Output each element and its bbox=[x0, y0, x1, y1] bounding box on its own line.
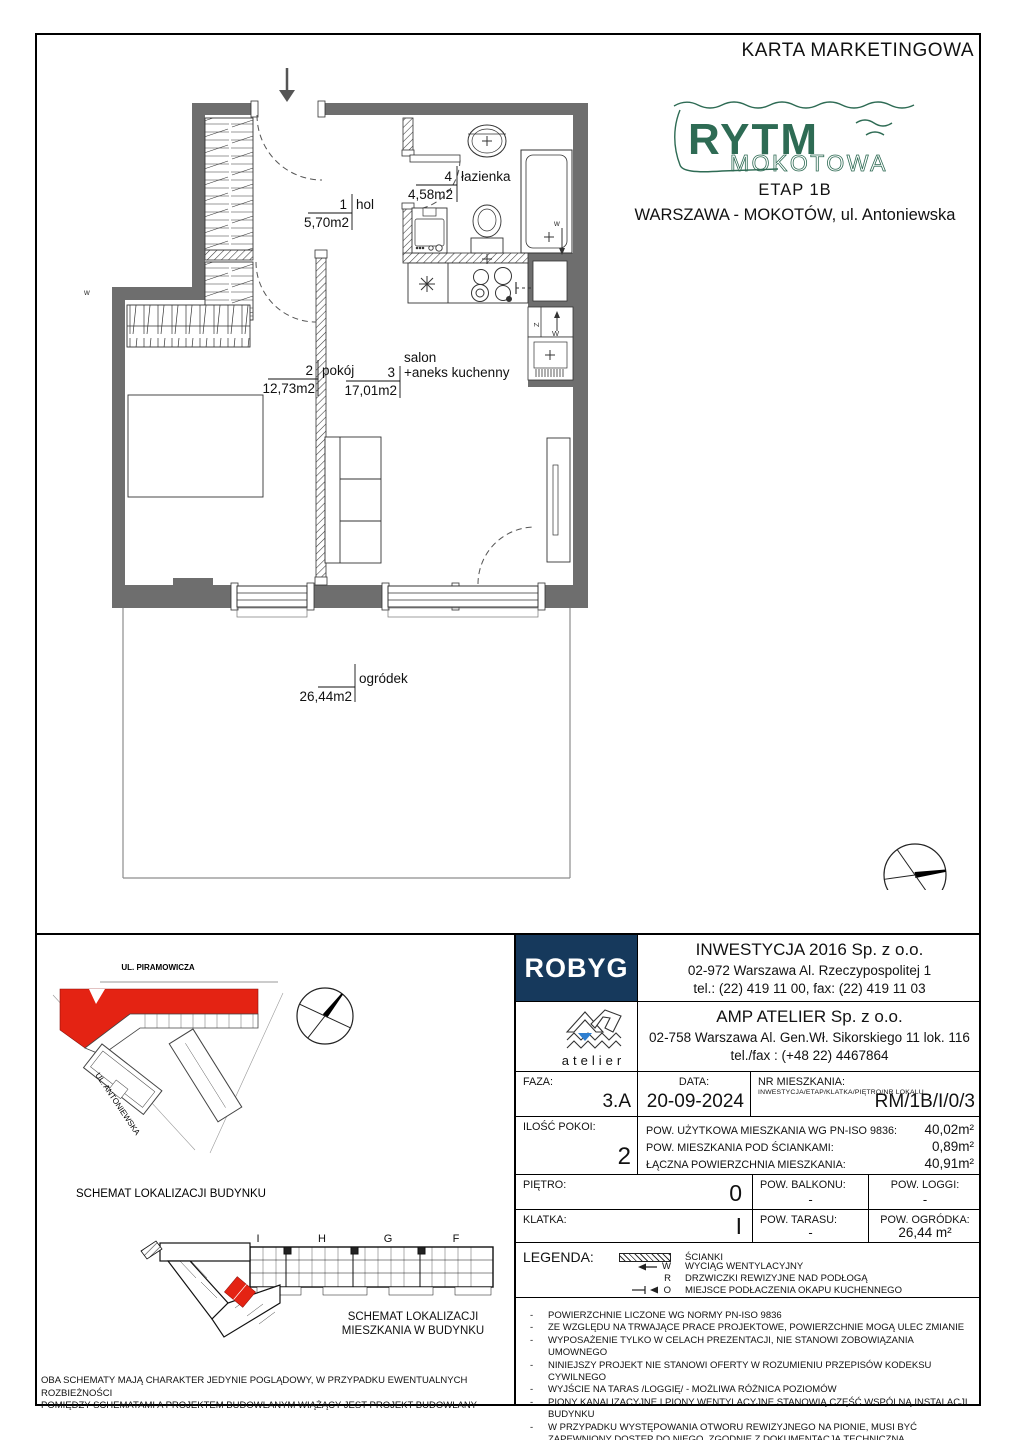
sofa bbox=[325, 437, 381, 563]
site-buildings bbox=[84, 1014, 258, 1122]
nr-value: RM/1B/I/0/3 bbox=[875, 1091, 975, 1113]
developer-row: ROBYG INWESTYCJA 2016 Sp. z o.o. 02-972 … bbox=[516, 935, 981, 1001]
etap-label: ETAP 1B bbox=[617, 181, 973, 200]
bath-door-leaf bbox=[410, 155, 460, 162]
taras-cell: POW. TARASU: - bbox=[752, 1210, 868, 1242]
apartment-schematic-caption: SCHEMAT LOKALIZACJI MIESZKANIA W BUDYNKU bbox=[342, 1311, 485, 1337]
building-schematic-caption: SCHEMAT LOKALIZACJI BUDYNKU bbox=[76, 1188, 266, 1200]
note-item: -WYPOSAŻENIE TYLKO W CELACH PREZENTACJI,… bbox=[530, 1335, 971, 1360]
vent-shafts bbox=[528, 261, 573, 380]
rooms-count-value: 2 bbox=[618, 1143, 631, 1171]
rooms-count-cell: ILOŚĆ POKOI: 2 bbox=[516, 1117, 637, 1174]
svg-text:1: 1 bbox=[339, 197, 347, 212]
vent-mark-w: W bbox=[552, 329, 560, 338]
architect-row: atelier AMP ATELIER Sp. z o.o. 02-758 Wa… bbox=[516, 1001, 981, 1071]
marketing-card-page: KARTA MARKETINGOWA bbox=[0, 0, 1018, 1440]
robyg-logo: ROBYG bbox=[516, 935, 637, 1001]
schematics-disclaimer: OBA SCHEMATY MAJĄ CHARAKTER JEDYNIE POGL… bbox=[41, 1375, 507, 1413]
note-item: -NINIEJSZY PROJEKT NIE STANOWI OFERTY W … bbox=[530, 1360, 971, 1385]
vent-mark-tub: w bbox=[553, 219, 560, 228]
svg-text:MIESZKANIA W BUDYNKU: MIESZKANIA W BUDYNKU bbox=[342, 1325, 485, 1337]
developer-phone: tel.: (22) 419 11 00, fax: (22) 419 11 0… bbox=[638, 981, 981, 996]
nr-mieszkania-cell: NR MIESZKANIA: INWESTYCJA/ETAP/KLATKA/PI… bbox=[750, 1072, 981, 1116]
svg-text:4,58m2: 4,58m2 bbox=[408, 187, 453, 202]
svg-text:12,73m2: 12,73m2 bbox=[262, 381, 315, 396]
faza-value: 3.A bbox=[602, 1091, 631, 1113]
svg-text:2: 2 bbox=[305, 363, 313, 378]
door-arcs bbox=[256, 115, 535, 584]
logo-sub-text: MOKOTOWA bbox=[730, 150, 888, 176]
walls-hatch-icon bbox=[619, 1253, 671, 1262]
pietro-row: PIĘTRO: 0 POW. BALKONU: - POW. LOGGI: - bbox=[516, 1174, 981, 1209]
balkon-cell: POW. BALKONU: - bbox=[752, 1175, 868, 1209]
window-pokoj bbox=[237, 586, 307, 617]
note-item: -W PRZYPADKU WYSTĘPOWANIA OTWORU REWIZYJ… bbox=[530, 1422, 971, 1440]
klatka-value: I bbox=[736, 1213, 742, 1240]
loggia-cell: POW. LOGGI: - bbox=[868, 1175, 981, 1209]
bottom-section: UL. PIRAMOWICZA bbox=[35, 933, 981, 1406]
svg-text:hol: hol bbox=[356, 197, 374, 212]
svg-text:26,44m2: 26,44m2 bbox=[299, 689, 352, 704]
note-item: -PIONY KANALIZACYJNE I PIONY WENTYLACYJN… bbox=[530, 1397, 971, 1422]
entry-arrow-icon bbox=[279, 68, 295, 102]
atelier-logo-icon bbox=[561, 1006, 627, 1052]
svg-text:+aneks kuchenny: +aneks kuchenny bbox=[404, 365, 510, 380]
data-cell: DATA: 20-09-2024 bbox=[637, 1072, 750, 1116]
bath-sink-icon bbox=[468, 125, 506, 157]
street-label-top: UL. PIRAMOWICZA bbox=[121, 963, 195, 972]
revision-door-symbol: R bbox=[664, 1273, 671, 1284]
klatka-row: KLATKA: I POW. TARASU: - POW. OGRÓDKA: 2… bbox=[516, 1209, 981, 1242]
svg-text:G: G bbox=[384, 1233, 393, 1245]
architect-info: AMP ATELIER Sp. z o.o. 02-758 Warszawa A… bbox=[637, 1002, 981, 1071]
page-title: KARTA MARKETINGOWA bbox=[742, 40, 974, 62]
pietro-cell: PIĘTRO: 0 bbox=[516, 1175, 752, 1209]
klatka-cell: KLATKA: I bbox=[516, 1210, 752, 1242]
bed bbox=[128, 395, 263, 497]
room-label-salon: salon 3 +aneks kuchenny 17,01m2 bbox=[344, 350, 509, 398]
areas-cell: POW. UŻYTKOWA MIESZKANIA WG PN-ISO 9836:… bbox=[637, 1117, 981, 1174]
svg-text:łazienka: łazienka bbox=[461, 169, 511, 184]
vent-mark-outside: w bbox=[83, 288, 90, 297]
hood-arrow-icon bbox=[631, 1285, 661, 1295]
svg-text:H: H bbox=[318, 1233, 326, 1245]
wardrobes bbox=[127, 118, 253, 347]
atelier-logo-text: atelier bbox=[562, 1053, 625, 1068]
kitchen-sink-icon bbox=[419, 276, 435, 292]
note-item: -ZE WZGLĘDU NA TRWAJĄCE PRACE PROJEKTOWE… bbox=[530, 1322, 971, 1334]
compass-icon bbox=[884, 844, 946, 890]
tv-unit bbox=[547, 438, 570, 562]
developer-info: INWESTYCJA 2016 Sp. z o.o. 02-972 Warsza… bbox=[637, 935, 981, 1001]
vent-mark-z: Z bbox=[532, 322, 541, 327]
pietro-value: 0 bbox=[729, 1180, 742, 1207]
svg-text:pokój: pokój bbox=[322, 363, 354, 378]
developer-address: 02-972 Warszawa Al. Rzeczypospolitej 1 bbox=[638, 963, 981, 978]
vent-arrow-icon bbox=[637, 1262, 659, 1272]
site-compass-icon bbox=[297, 988, 353, 1044]
room-label-ogrodek: ogródek 26,44m2 bbox=[299, 664, 408, 704]
note-item: -WYJŚCIE NA TARAS /LOGGIĘ/ - MOŻLIWA RÓŻ… bbox=[530, 1384, 971, 1396]
note-item: -POWIERZCHNIE LICZONE WG NORMY PN-ISO 98… bbox=[530, 1310, 971, 1322]
bathtub-icon bbox=[521, 150, 572, 255]
atelier-logo: atelier bbox=[516, 1002, 637, 1071]
brand-block: RYTM MOKOTOWA ETAP 1B WARSZAWA - MOKOTÓW… bbox=[617, 97, 973, 225]
title-block: ROBYG INWESTYCJA 2016 Sp. z o.o. 02-972 … bbox=[514, 935, 981, 1406]
building-location-schematic: UL. PIRAMOWICZA bbox=[45, 945, 505, 1207]
architect-address: 02-758 Warszawa Al. Gen.Wł. Sikorskiego … bbox=[638, 1030, 981, 1045]
faza-data-nr-row: FAZA: 3.A DATA: 20-09-2024 NR MIESZKANIA… bbox=[516, 1071, 981, 1116]
data-value: 20-09-2024 bbox=[647, 1091, 744, 1113]
developer-name: INWESTYCJA 2016 Sp. z o.o. bbox=[638, 940, 981, 960]
faza-cell: FAZA: 3.A bbox=[516, 1072, 637, 1116]
svg-text:17,01m2: 17,01m2 bbox=[344, 383, 397, 398]
ogrodek-cell: POW. OGRÓDKA: 26,44 m² bbox=[868, 1210, 981, 1242]
legend-row: LEGENDA: ŚCIANKI W WYCIĄG WENTYLACYJNY bbox=[516, 1242, 981, 1297]
room-label-lazienka: 4 łazienka 4,58m2 bbox=[408, 166, 511, 202]
svg-text:F: F bbox=[453, 1233, 460, 1245]
area-row: POW. MIESZKANIA POD ŚCIANKAMI: 0,89m² bbox=[638, 1139, 981, 1156]
svg-text:3: 3 bbox=[387, 365, 395, 380]
building-strip bbox=[250, 1247, 493, 1295]
svg-text:5,70m2: 5,70m2 bbox=[304, 215, 349, 230]
rytm-mokotowa-logo: RYTM MOKOTOWA bbox=[660, 97, 970, 177]
area-row: POW. UŻYTKOWA MIESZKANIA WG PN-ISO 9836:… bbox=[638, 1122, 981, 1139]
svg-text:SCHEMAT LOKALIZACJI: SCHEMAT LOKALIZACJI bbox=[348, 1311, 479, 1323]
svg-text:salon: salon bbox=[404, 350, 436, 365]
room-label-pokoj: 2 pokój 12,73m2 bbox=[262, 360, 354, 396]
garden-outline bbox=[123, 608, 570, 878]
rooms-areas-row: ILOŚĆ POKOI: 2 POW. UŻYTKOWA MIESZKANIA … bbox=[516, 1116, 981, 1174]
notes-row: -POWIERZCHNIE LICZONE WG NORMY PN-ISO 98… bbox=[516, 1297, 981, 1404]
svg-text:4: 4 bbox=[444, 169, 452, 184]
washing-machine-icon bbox=[412, 208, 447, 253]
project-address: WARSZAWA - MOKOTÓW, ul. Antoniewska bbox=[617, 206, 973, 225]
room-label-hol: 1 hol 5,70m2 bbox=[304, 194, 374, 230]
legend-label: LEGENDA: bbox=[523, 1249, 605, 1265]
svg-text:I: I bbox=[256, 1233, 259, 1245]
architect-name: AMP ATELIER Sp. z o.o. bbox=[638, 1007, 981, 1027]
svg-text:ogródek: ogródek bbox=[359, 671, 408, 686]
ogrodek-value: 26,44 m² bbox=[869, 1225, 981, 1240]
window-salon bbox=[388, 586, 538, 617]
apartment-location-schematic: I H G F bbox=[35, 1230, 495, 1370]
architect-phone: tel./fax : (+48 22) 4467864 bbox=[638, 1048, 981, 1063]
schematics-panel: UL. PIRAMOWICZA bbox=[35, 935, 514, 1406]
section-letters: I H G F bbox=[256, 1233, 459, 1245]
area-row: ŁĄCZNA POWIERZCHNIA MIESZKANIA: 40,91m² bbox=[638, 1156, 981, 1173]
